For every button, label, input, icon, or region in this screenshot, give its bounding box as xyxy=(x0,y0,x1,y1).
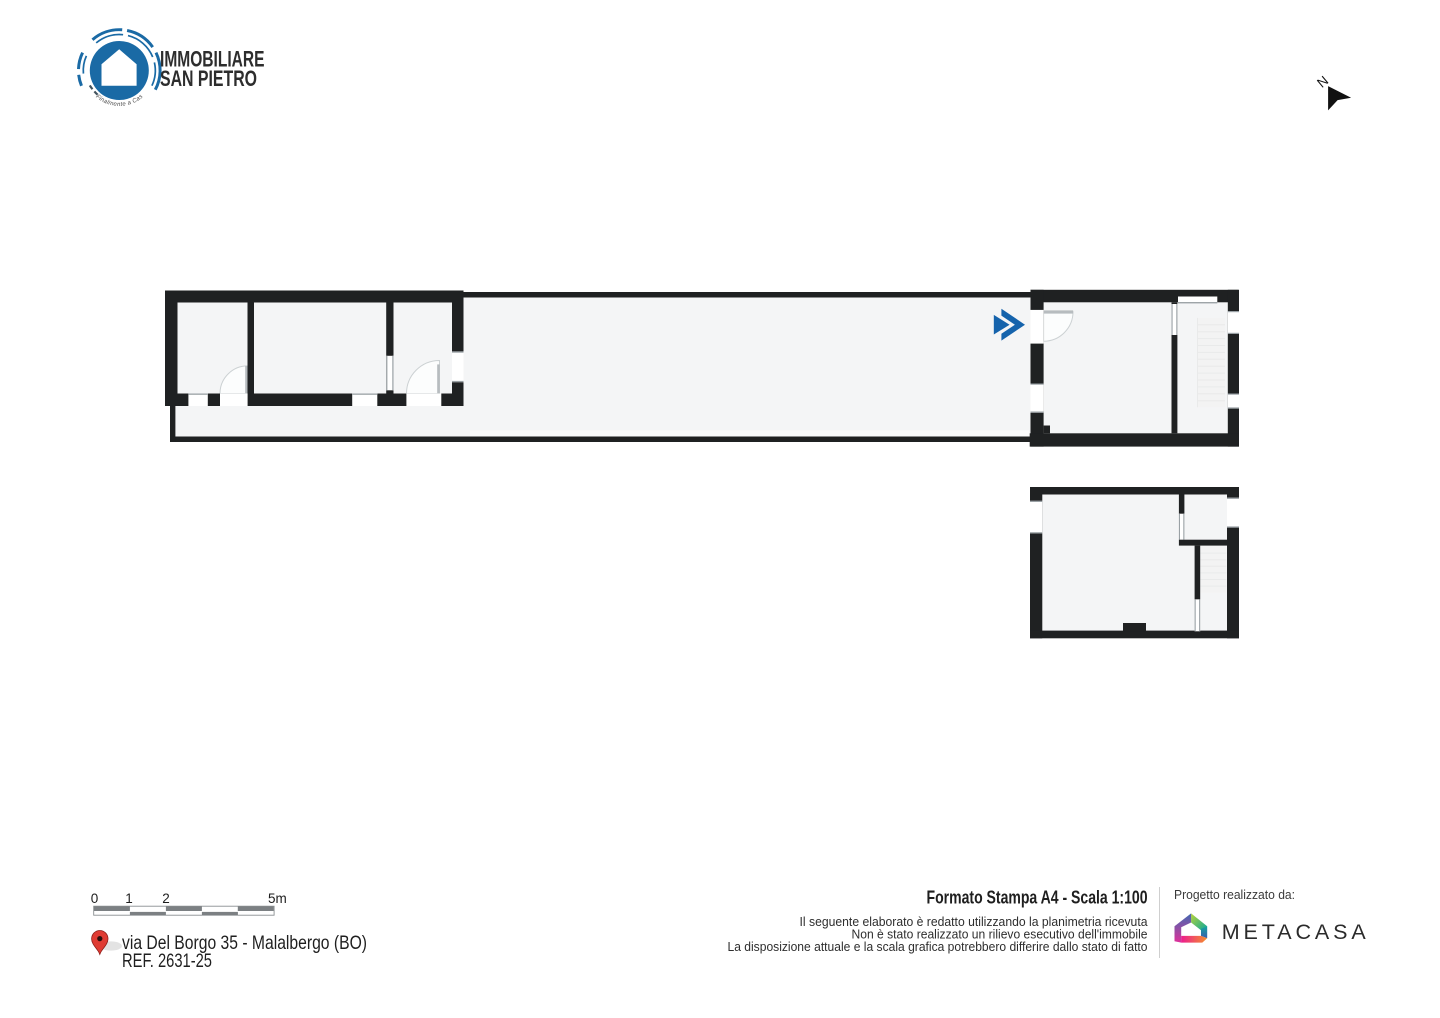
svg-text:METACASA: METACASA xyxy=(1222,920,1369,944)
svg-text:1: 1 xyxy=(125,891,133,906)
svg-text:Progetto realizzato da:: Progetto realizzato da: xyxy=(1174,887,1295,902)
svg-text:Formato Stampa A4 - Scala 1:10: Formato Stampa A4 - Scala 1:100 xyxy=(927,887,1148,907)
svg-text:La disposizione attuale e la s: La disposizione attuale e la scala grafi… xyxy=(728,939,1148,954)
svg-text:5m: 5m xyxy=(268,891,287,906)
svg-text:0: 0 xyxy=(91,891,99,906)
svg-text:SAN PIETRO: SAN PIETRO xyxy=(160,66,257,91)
svg-text:2: 2 xyxy=(162,891,170,906)
svg-text:REF. 2631-25: REF. 2631-25 xyxy=(122,951,212,972)
